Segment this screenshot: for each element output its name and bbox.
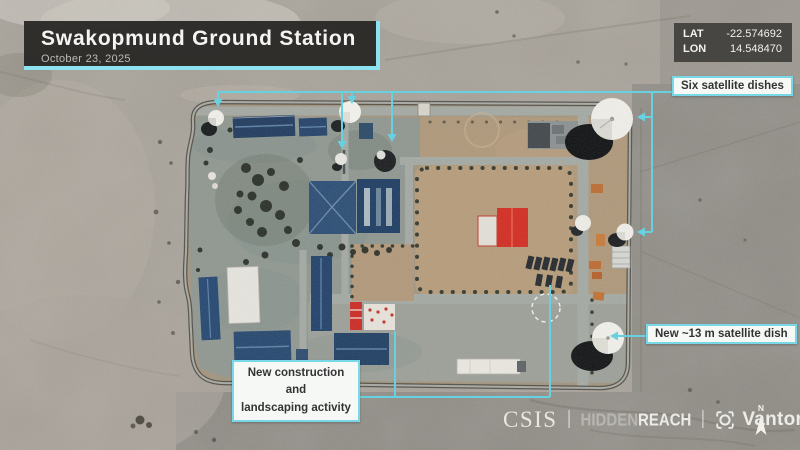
hiddenreach-reach: REACH: [638, 410, 691, 430]
hiddenreach-logo: HIDDENREACH: [581, 410, 692, 430]
lon-label: LON: [683, 42, 711, 57]
separator-pipe: |: [700, 408, 705, 430]
north-letter: N: [758, 403, 764, 413]
callout-construction: New construction and landscaping activit…: [232, 360, 360, 422]
coordinates-box: LAT -22.574692 LON 14.548470: [674, 23, 792, 62]
page-title: Swakopmund Ground Station: [41, 27, 366, 51]
north-arrow-icon: N: [752, 402, 770, 440]
hiddenreach-hidden: HIDDEN: [581, 410, 639, 430]
title-card: Swakopmund Ground Station October 23, 20…: [24, 21, 380, 70]
date-label: October 23, 2025: [41, 53, 366, 65]
lat-label: LAT: [683, 27, 711, 42]
vantor-wordmark: Vantor: [742, 409, 800, 431]
lat-value: -22.574692: [720, 27, 782, 42]
annotated-satellite-graphic: Swakopmund Ground Station October 23, 20…: [0, 0, 800, 450]
callout-construction-line2: landscaping activity: [241, 402, 351, 414]
callout-construction-line1: New construction and: [248, 367, 344, 396]
separator-pipe: |: [567, 408, 572, 430]
north-indicator: N: [752, 402, 770, 445]
callout-six-dishes: Six satellite dishes: [672, 76, 793, 96]
callout-new-dish: New ~13 m satellite dish: [646, 324, 797, 344]
lon-value: 14.548470: [720, 42, 782, 57]
vantor-aperture-icon: [714, 409, 736, 431]
csis-logo: CSIS: [503, 407, 558, 433]
